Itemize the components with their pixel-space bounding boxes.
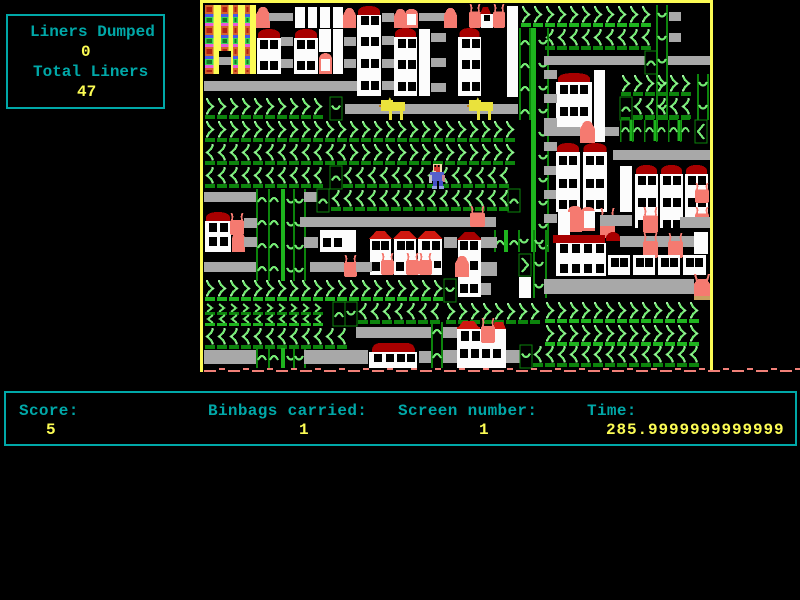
svg-text:0: 0 (81, 43, 91, 61)
svg-text:Liners Dumped: Liners Dumped (30, 23, 155, 41)
svg-text:Screen number:: Screen number: (398, 402, 537, 420)
svg-text:1: 1 (479, 421, 489, 439)
svg-text:285.9999999999999: 285.9999999999999 (606, 421, 785, 439)
svg-text:1: 1 (299, 421, 309, 439)
svg-text:Time:: Time: (587, 402, 637, 420)
svg-text:Total Liners: Total Liners (33, 63, 148, 81)
svg-text:47: 47 (77, 83, 96, 101)
svg-text:5: 5 (46, 421, 56, 439)
svg-text:Score:: Score: (19, 402, 79, 420)
svg-text:Binbags carried:: Binbags carried: (208, 402, 367, 420)
